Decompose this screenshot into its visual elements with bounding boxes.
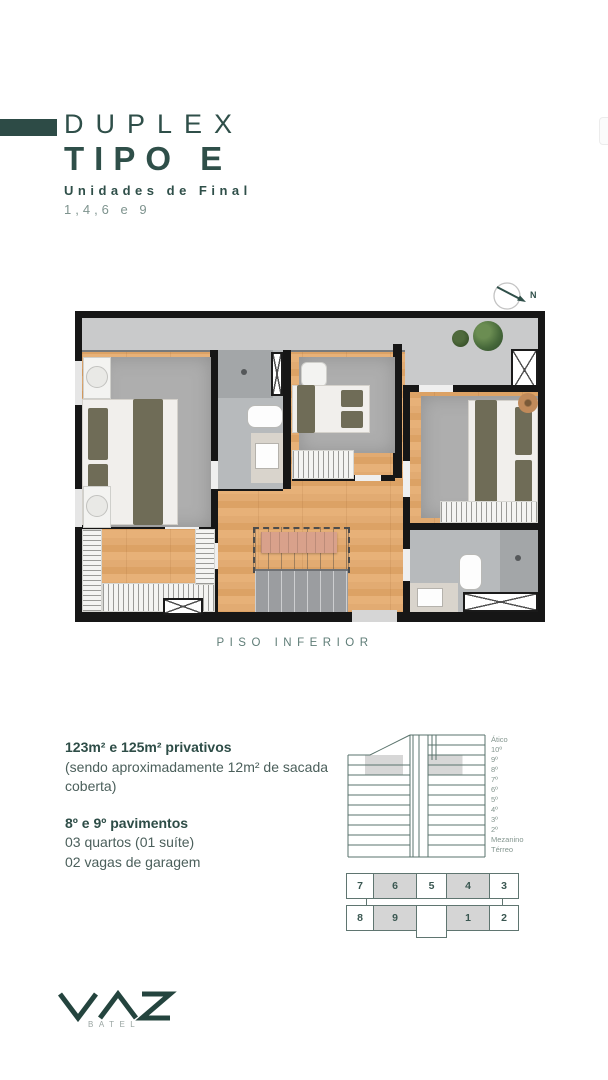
small-plant-icon [452,330,469,347]
floor-label-3: 3º [491,815,498,824]
unit-details: 123m² e 125m² privativos (sendo aproxima… [65,738,365,872]
floor-label-9: 9º [491,755,498,764]
unit-box-core [416,905,447,938]
pillow [515,407,532,455]
unit-box-2: 2 [489,905,519,931]
bed-runner [475,400,497,516]
wall-bed3-bath [403,523,538,530]
pillow [341,411,363,428]
unit-box-3: 3 [489,873,519,899]
closet-bedroom2 [292,450,354,479]
floor-label-atico: Ático [491,735,508,744]
closet-bedroom3 [440,501,538,523]
floor-plan [75,311,545,622]
unit-box-9: 9 [373,905,417,931]
shower-drain [241,369,247,375]
floor-label-8: 8º [491,765,498,774]
duct-closet [163,598,203,615]
window [75,489,82,527]
vent-shaft [271,352,283,396]
side-table [518,393,538,413]
unit-box-1: 1 [446,905,490,931]
brand-sub-label: BATEL [88,1020,140,1029]
pillow [88,408,108,460]
bed-runner [133,399,163,525]
area-note-line1: (sendo aproximadamente 12m² de sacada [65,758,365,778]
unit-box-5: 5 [416,873,447,899]
stairs-lower-flight [255,569,348,612]
bed-runner [297,385,315,433]
vaz-logo-mark [57,985,177,1025]
floor-label-6: 6º [491,785,498,794]
shower-drain [515,555,521,561]
parking-line: 02 vagas de garagem [65,853,365,873]
north-compass: N [492,278,548,314]
chair [301,362,327,387]
floor-label-mezanino: Mezanino [491,835,524,844]
area-title: 123m² e 125m² privativos [65,738,365,758]
door-suite-bath [403,549,410,581]
pillow [341,390,363,407]
unit-position-map: 7 6 5 4 3 8 9 1 2 [346,871,526,943]
compass-north-label: N [530,290,537,300]
suite-toilet [459,554,482,590]
compass-icon [492,278,548,314]
closet-shelf-left [82,529,102,612]
duct-suite [463,592,538,612]
floor-label-7: 7º [491,775,498,784]
unit-box-8: 8 [346,905,374,931]
door-bedroom1 [210,461,218,489]
units-subtitle: Unidades de Final [64,183,252,198]
floor-label-2: 2º [491,825,498,834]
toilet [247,405,283,428]
door-bedroom2 [355,475,381,481]
door-bedroom3 [403,461,410,497]
unit-box-6: 6 [373,873,417,899]
floor-label-terreo: Térreo [491,845,513,854]
stairs-landing [261,532,337,553]
floor-label-5: 5º [491,795,498,804]
unit-box-4: 4 [446,873,490,899]
page-title-type: TIPO E [64,140,232,178]
window [75,361,82,405]
header-accent-bar [0,119,57,136]
area-note-line2: coberta) [65,777,365,797]
floor-label-4: 4º [491,805,498,814]
suite-shower [500,530,538,592]
sink [255,443,279,469]
plan-caption: PISO INFERIOR [180,637,410,649]
floor-label-10: 10º [491,745,502,754]
door-balcony [419,385,453,392]
floors-title: 8º e 9º pavimentos [65,814,365,834]
page-title: DUPLEX [64,109,244,140]
brochure-page: DUPLEX TIPO E Unidades de Final 1,4,6 e … [0,0,608,1080]
unit-box-7: 7 [346,873,374,899]
entry-threshold [352,610,397,622]
closet-shelf-right [195,529,215,585]
suite-sink [417,588,443,607]
bedrooms-line: 03 quartos (01 suíte) [65,833,365,853]
plant-icon [473,321,503,351]
lamp-bottom [86,495,108,517]
building-section-diagram: Ático 10º 9º 8º 7º 6º 5º 4º 3º 2º Mezani… [345,728,525,860]
wall-bath-bed2 [283,350,291,489]
units-numbers: 1,4,6 e 9 [64,202,151,217]
right-edge-artifact [599,117,608,145]
lamp-top [86,366,108,388]
brand-name: VAZ [177,985,178,986]
